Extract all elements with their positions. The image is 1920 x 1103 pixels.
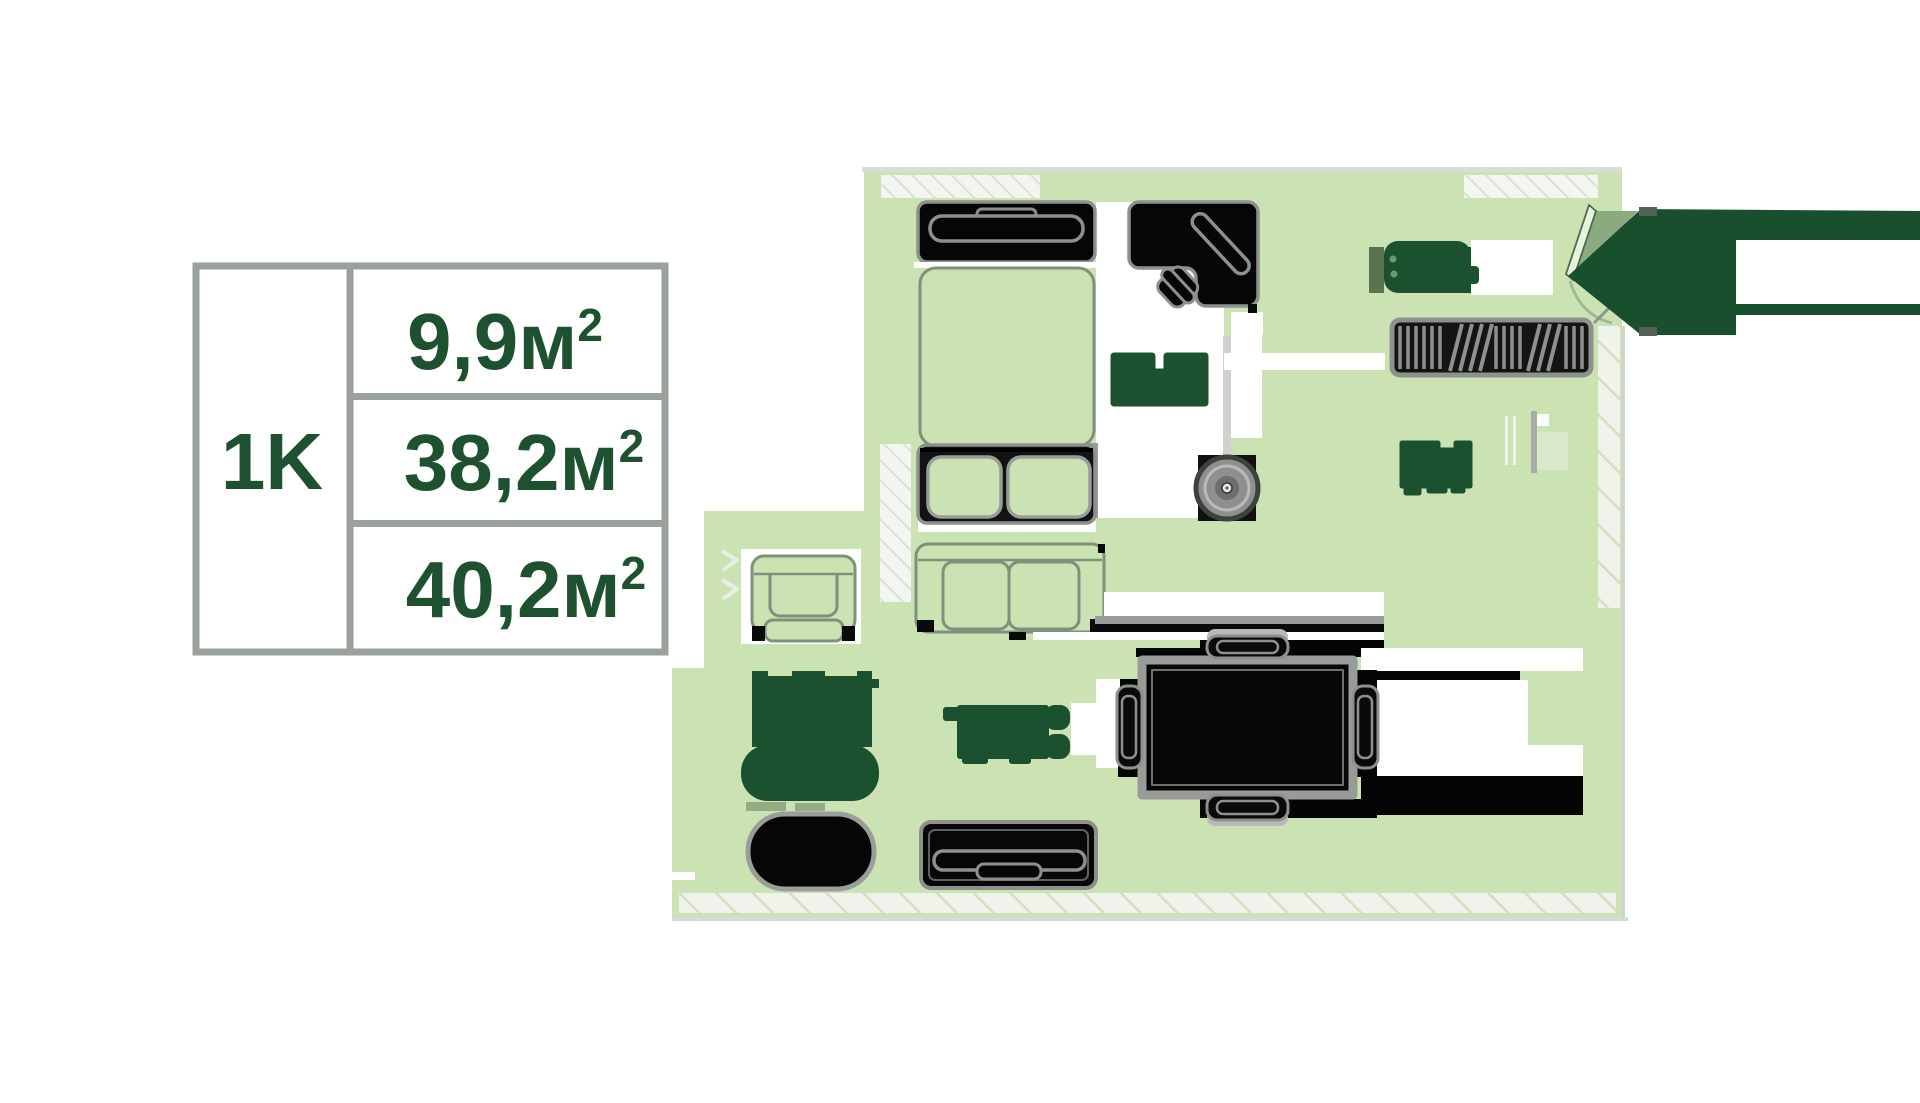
svg-text:9,9м2: 9,9м2 [407, 297, 603, 386]
svg-text:1K: 1K [221, 417, 323, 506]
svg-text:40,2м2: 40,2м2 [406, 545, 646, 634]
svg-text:38,2м2: 38,2м2 [404, 418, 644, 507]
